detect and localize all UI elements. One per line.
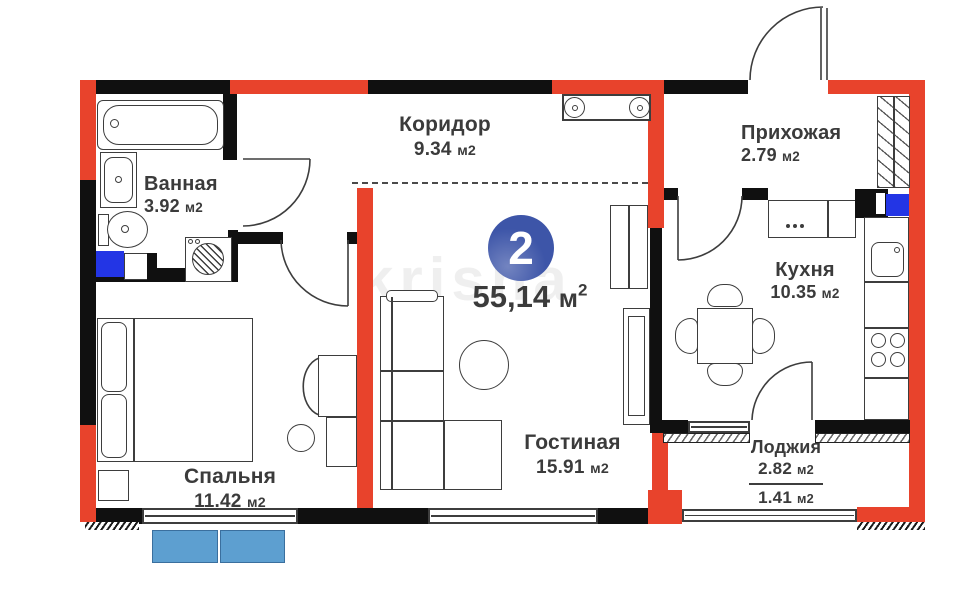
bathroom-cabinet [124,253,148,280]
wardrobe-divider [893,97,895,187]
stove-burner-2 [890,333,905,348]
loggia-area-divider [749,483,823,485]
kitchen-counter-divider [827,201,829,237]
washing-machine-drum [192,243,224,275]
roller-left-dot [572,105,578,111]
stove-burner-1 [871,333,886,348]
room-label-living-room: Гостиная 15.91 м2 [495,430,650,479]
rooms-count-badge: 2 [488,215,554,281]
bathroom-area: 3.92 м2 [144,196,254,218]
toilet-drain [121,225,129,233]
room-label-bathroom: Ванная 3.92 м2 [144,172,254,218]
bed-blanket-line [133,319,135,461]
room-label-corridor: Коридор 9.34 м2 [375,112,515,161]
bathtub-drain [110,119,119,128]
loggia-name: Лоджия [727,437,845,459]
bathroom-partition-stub [147,253,157,280]
loggia-area-total: 2.82 м2 [727,459,845,480]
total-area-value: 55,14 [473,279,551,314]
kitchen-sink-faucet [894,247,900,253]
counter-dot-2 [793,224,797,228]
sink-drain [115,176,122,183]
hallway-area: 2.79 м2 [741,145,876,167]
floor-plan: krisha [0,0,979,609]
bedroom-name: Спальня [160,464,300,490]
total-area-unit: м [559,283,578,313]
counter-shelf-line-1 [865,281,908,283]
bedroom-area: 11.42 м2 [160,490,300,513]
hallway-name: Прихожая [741,121,876,145]
counter-shelf-line-2 [865,327,908,329]
room-label-kitchen: Кухня 10.35 м2 [750,258,860,304]
room-label-bedroom: Спальня 11.42 м2 [160,464,300,513]
counter-dot-1 [786,224,790,228]
washer-knob-1 [188,239,193,244]
sofa-cushion-line-1 [381,370,443,372]
loggia-area-counted: 1.41 м2 [727,488,845,509]
tall-cabinet-slot [876,193,885,214]
stove-burner-3 [871,352,886,367]
living-room-area: 15.91 м2 [495,456,650,479]
corridor-area: 9.34 м2 [375,138,515,161]
washer-knob-2 [195,239,200,244]
desk-chair-back-curve [303,358,319,415]
room-label-hallway: Прихожая 2.79 м2 [741,121,876,167]
rooms-count: 2 [508,221,534,275]
entrance-door-arc [750,7,827,80]
living-room-name: Гостиная [495,430,650,456]
counter-dot-3 [800,224,804,228]
total-area-sup: 2 [578,281,587,300]
sofa-cushion-line-2 [381,420,443,422]
counter-shelf-line-3 [865,377,908,379]
kitchen-appliance-blue [886,194,909,216]
loggia-door-arc [752,362,812,420]
tv-cabinet-divider [628,206,630,288]
roller-right-dot [637,105,643,111]
total-area: 55,14 м2 [410,279,650,315]
bathroom-radiator-blue [96,251,124,277]
stove-burner-4 [890,352,905,367]
corridor-name: Коридор [375,112,515,138]
sofa-back-line [391,297,393,489]
kitchen-name: Кухня [750,258,860,282]
bedroom-door-arc [281,240,348,306]
room-label-loggia: Лоджия 2.82 м2 1.41 м2 [727,437,845,508]
kitchen-area: 10.35 м2 [750,282,860,304]
bathroom-name: Ванная [144,172,254,196]
kitchen-door-arc [678,196,742,260]
